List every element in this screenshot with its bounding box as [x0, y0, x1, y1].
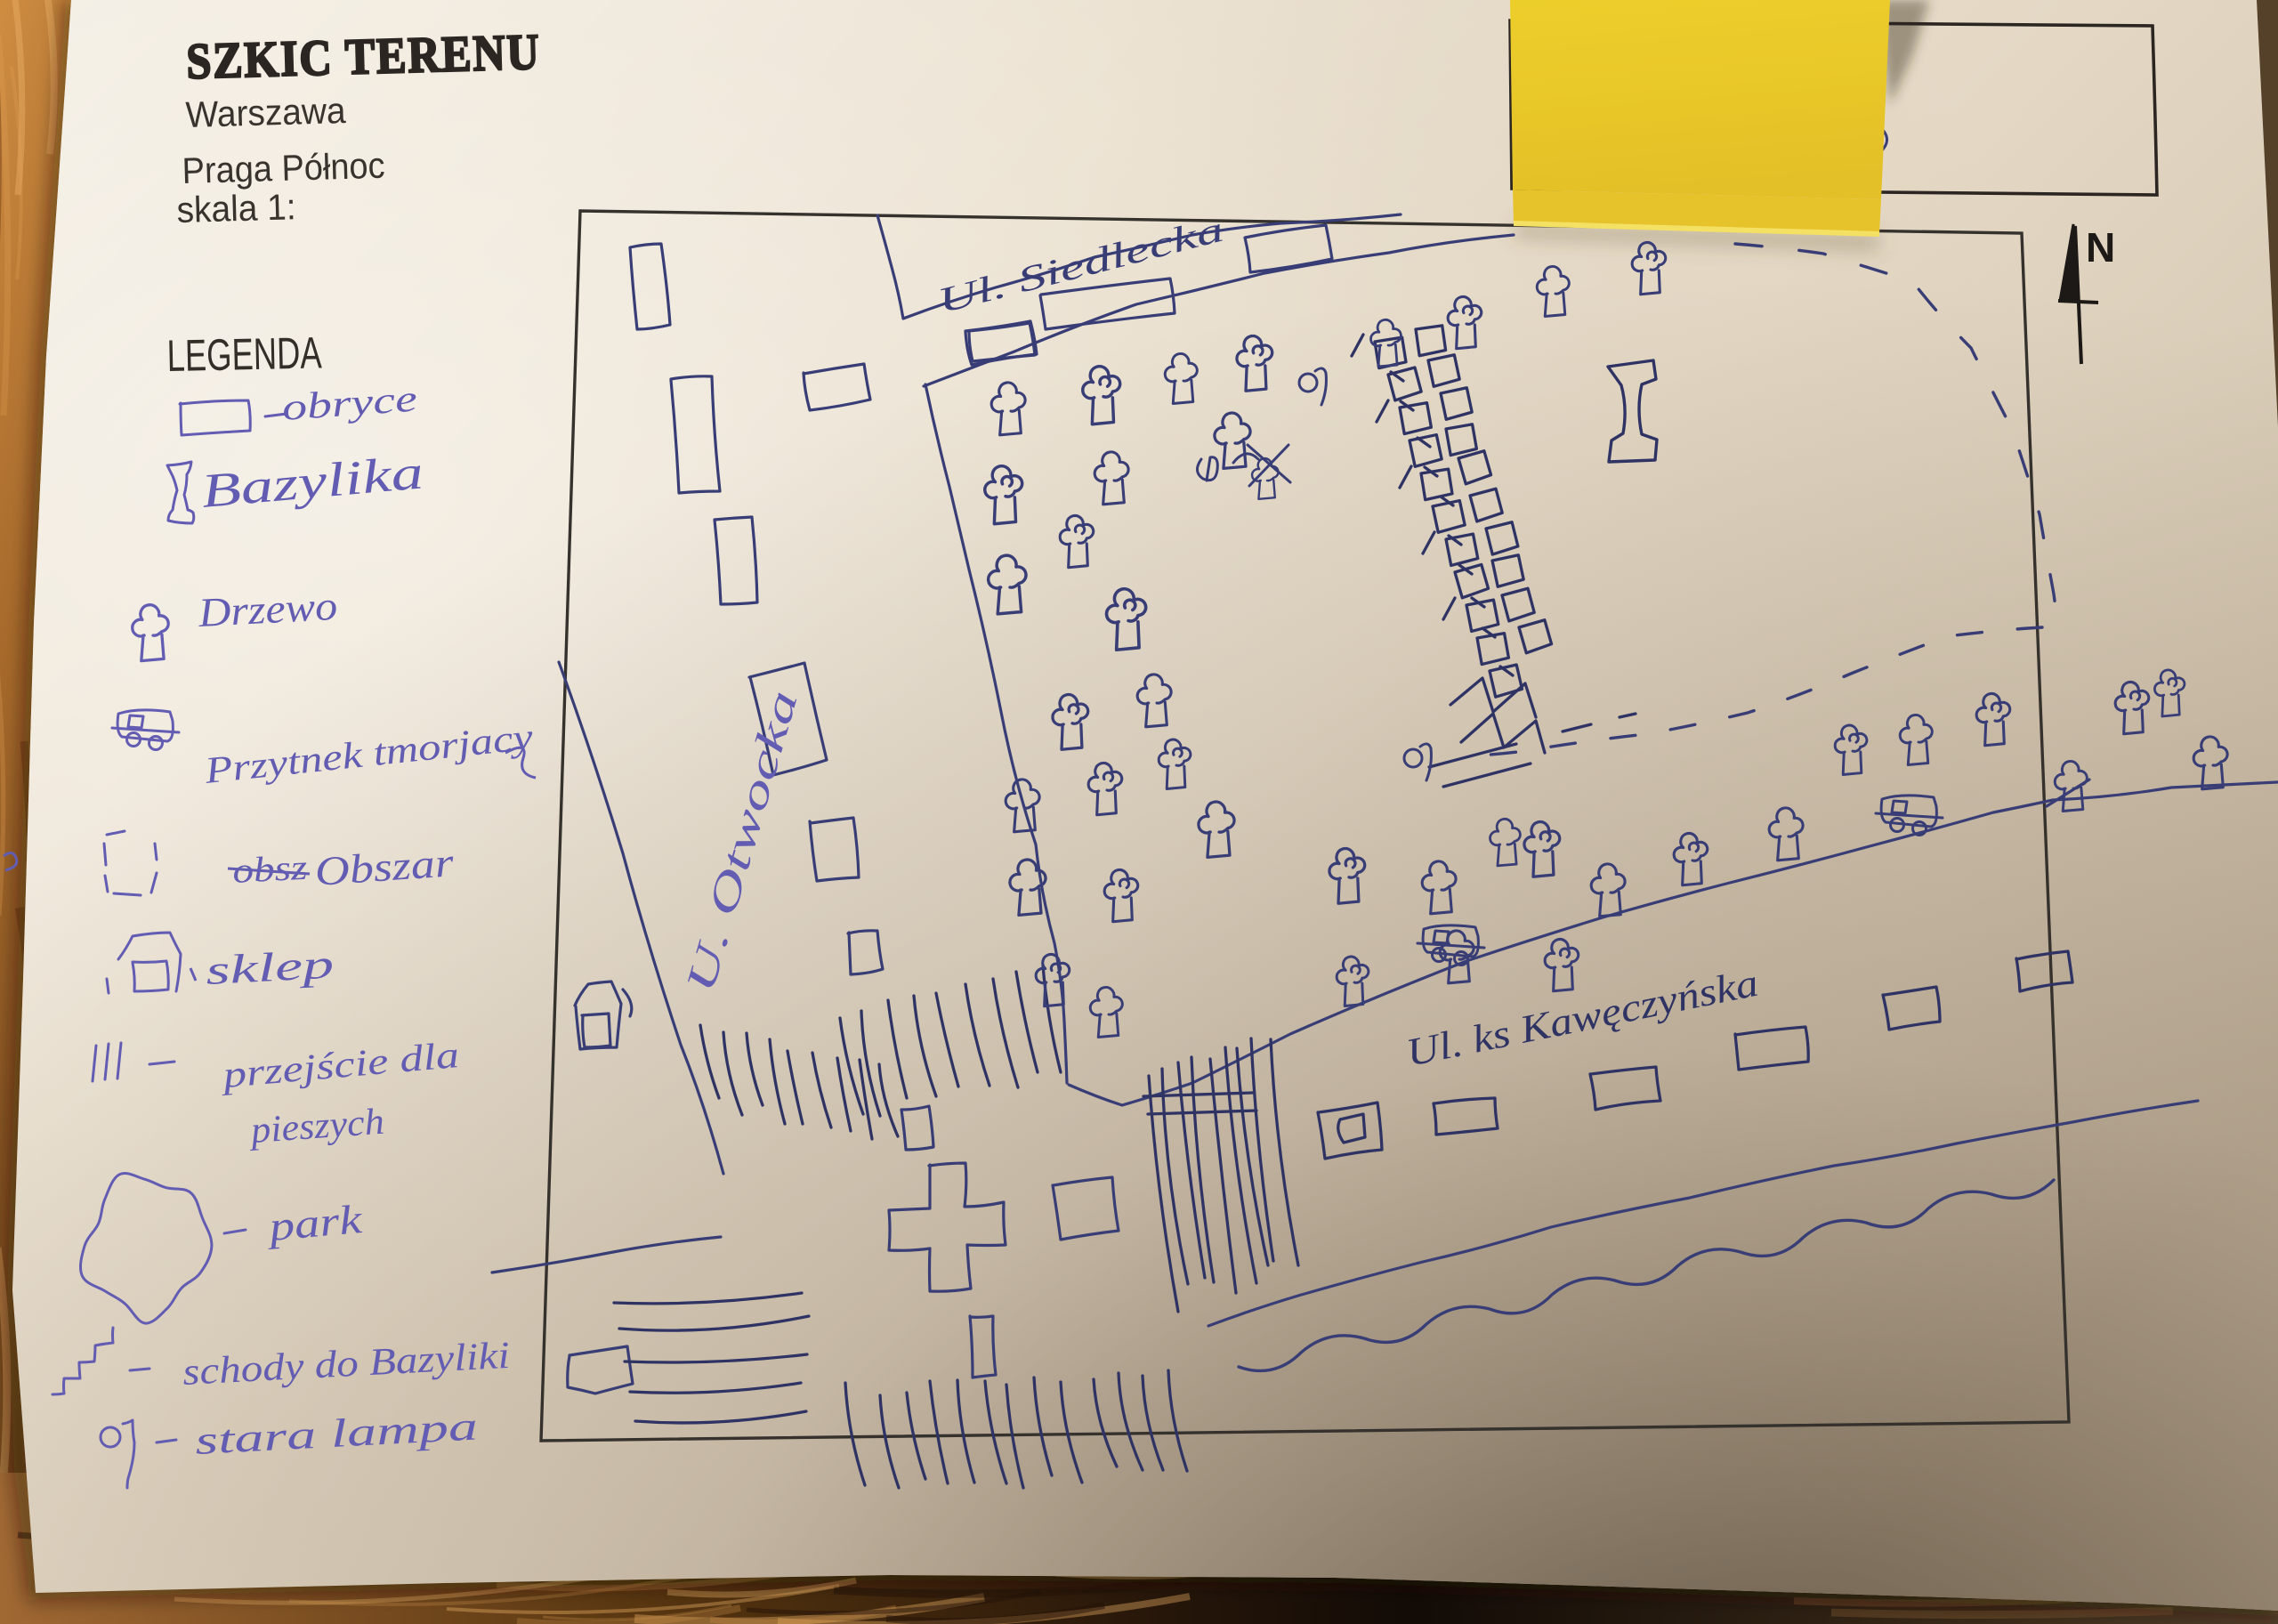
svg-text:Drzewo: Drzewo	[197, 583, 339, 635]
svg-text:N: N	[2086, 224, 2115, 271]
svg-text:park: park	[264, 1196, 366, 1249]
svg-text:Warszawa: Warszawa	[185, 90, 346, 135]
svg-text:LEGENDA: LEGENDA	[166, 327, 323, 381]
svg-text:skala 1:: skala 1:	[176, 186, 296, 230]
svg-text:Praga Północ: Praga Północ	[182, 145, 385, 191]
svg-text:sklep: sklep	[205, 941, 335, 993]
svg-text:SZKIC TERENU: SZKIC TERENU	[186, 24, 542, 90]
